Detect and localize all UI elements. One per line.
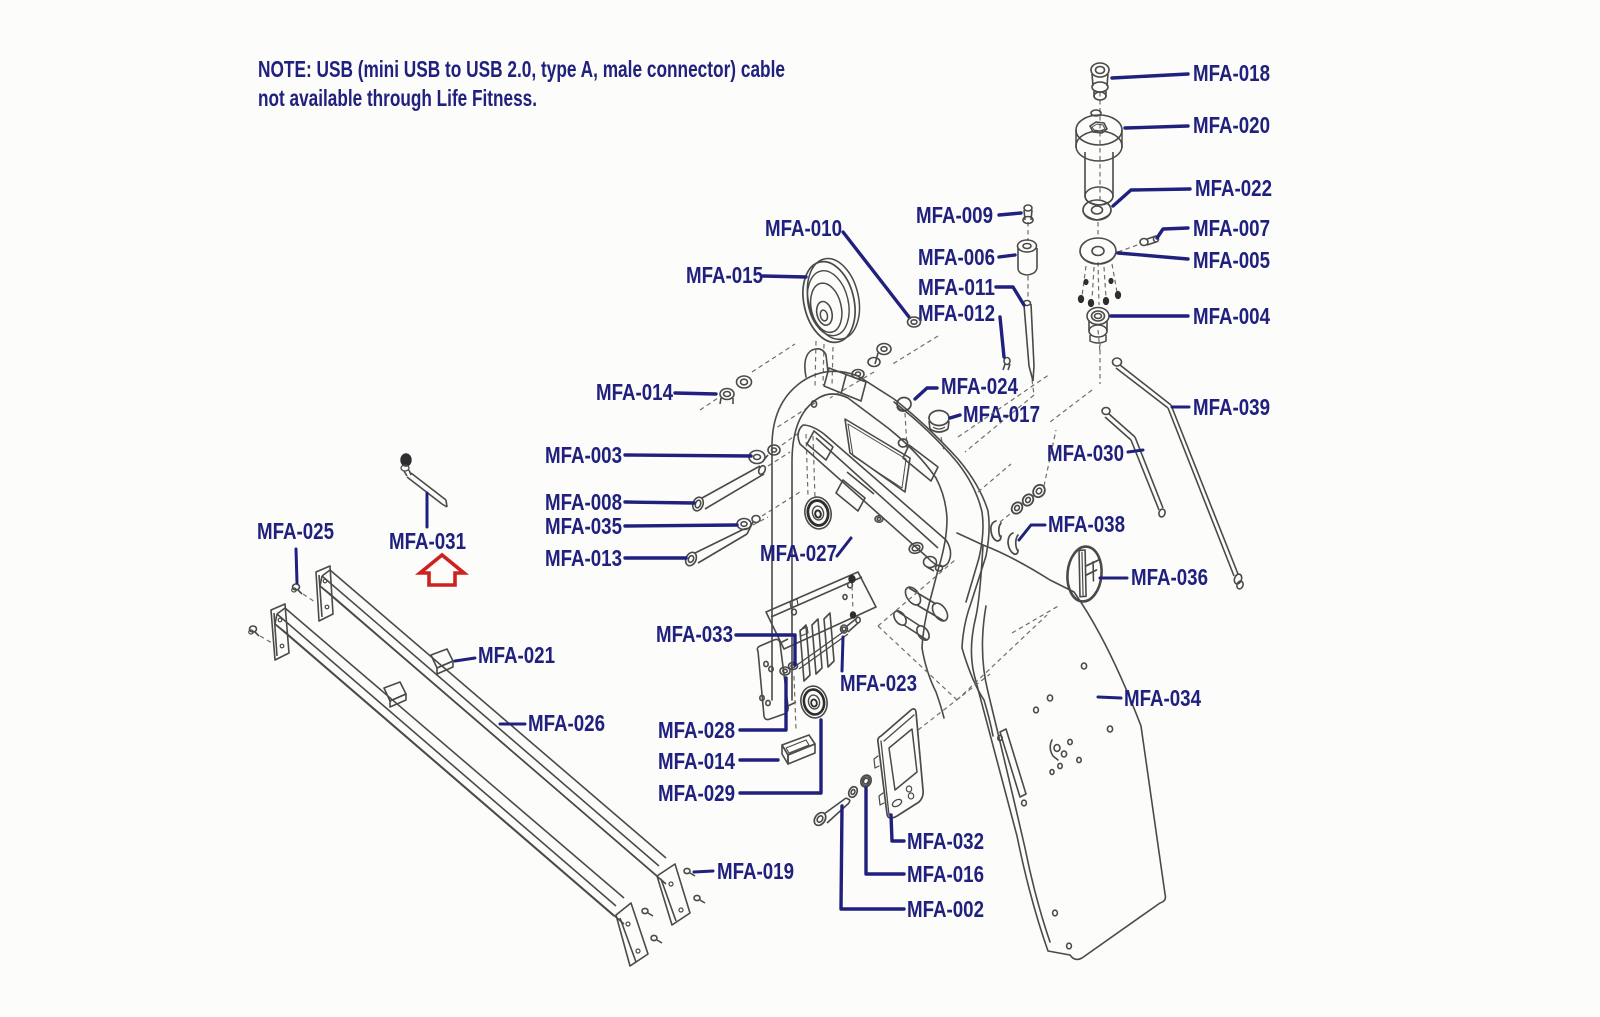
svg-text:MFA-014: MFA-014 — [596, 379, 673, 405]
svg-text:MFA-039: MFA-039 — [1193, 394, 1270, 420]
svg-text:MFA-022: MFA-022 — [1195, 175, 1272, 201]
svg-text:MFA-007: MFA-007 — [1193, 215, 1270, 241]
svg-text:MFA-006: MFA-006 — [918, 244, 995, 270]
svg-text:MFA-031: MFA-031 — [389, 528, 466, 554]
svg-text:MFA-029: MFA-029 — [658, 780, 735, 806]
svg-text:NOTE: USB (mini USB to USB 2.0: NOTE: USB (mini USB to USB 2.0, type A, … — [258, 56, 785, 82]
svg-text:MFA-016: MFA-016 — [907, 861, 984, 887]
svg-text:MFA-018: MFA-018 — [1193, 60, 1270, 86]
svg-text:MFA-008: MFA-008 — [545, 489, 622, 515]
svg-text:MFA-002: MFA-002 — [907, 896, 984, 922]
svg-text:MFA-023: MFA-023 — [840, 670, 917, 696]
svg-text:MFA-025: MFA-025 — [257, 518, 334, 544]
svg-text:MFA-020: MFA-020 — [1193, 112, 1270, 138]
svg-text:MFA-010: MFA-010 — [765, 215, 842, 241]
svg-text:MFA-038: MFA-038 — [1048, 511, 1125, 537]
svg-text:MFA-024: MFA-024 — [941, 373, 1018, 399]
svg-text:MFA-019: MFA-019 — [717, 858, 794, 884]
svg-text:MFA-009: MFA-009 — [916, 202, 993, 228]
svg-text:MFA-003: MFA-003 — [545, 442, 622, 468]
svg-text:MFA-005: MFA-005 — [1193, 247, 1270, 273]
svg-text:MFA-012: MFA-012 — [918, 300, 995, 326]
svg-text:MFA-011: MFA-011 — [918, 274, 995, 300]
svg-text:MFA-036: MFA-036 — [1131, 564, 1208, 590]
svg-text:MFA-015: MFA-015 — [686, 262, 763, 288]
svg-text:MFA-004: MFA-004 — [1193, 303, 1270, 329]
svg-text:MFA-027: MFA-027 — [760, 540, 837, 566]
svg-text:MFA-017: MFA-017 — [963, 401, 1040, 427]
svg-text:MFA-014: MFA-014 — [658, 748, 735, 774]
svg-text:not available through Life Fit: not available through Life Fitness. — [258, 85, 537, 111]
svg-text:MFA-033: MFA-033 — [656, 621, 733, 647]
svg-text:MFA-034: MFA-034 — [1124, 685, 1201, 711]
svg-text:MFA-028: MFA-028 — [658, 717, 735, 743]
svg-text:MFA-026: MFA-026 — [528, 710, 605, 736]
svg-text:MFA-021: MFA-021 — [478, 642, 555, 668]
svg-text:MFA-035: MFA-035 — [545, 513, 622, 539]
svg-text:MFA-030: MFA-030 — [1047, 440, 1124, 466]
svg-text:MFA-032: MFA-032 — [907, 828, 984, 854]
svg-text:MFA-013: MFA-013 — [545, 545, 622, 571]
